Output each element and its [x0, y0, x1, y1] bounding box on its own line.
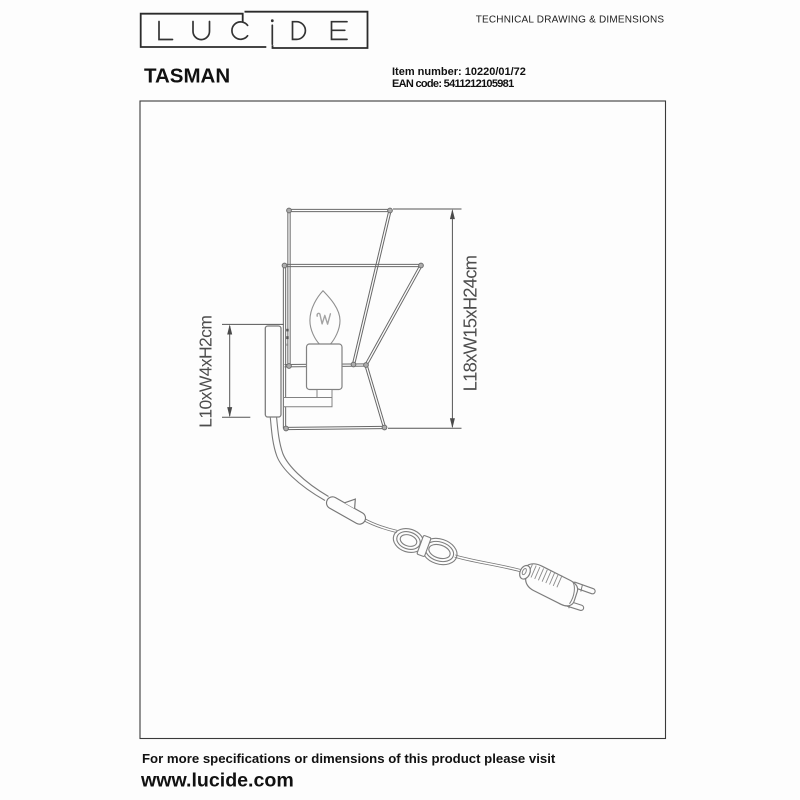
- svg-text:L18xW15xH24cm: L18xW15xH24cm: [460, 255, 481, 391]
- svg-text:Item number: 10220/01/72: Item number: 10220/01/72: [392, 66, 526, 78]
- svg-text:www.lucide.com: www.lucide.com: [140, 770, 294, 792]
- svg-text:TASMAN: TASMAN: [144, 65, 230, 88]
- svg-text:TECHNICAL DRAWING & DIMENSIONS: TECHNICAL DRAWING & DIMENSIONS: [476, 15, 665, 26]
- svg-text:For more specifications or dim: For more specifications or dimensions of…: [142, 751, 556, 766]
- svg-text:L10xW4xH2cm: L10xW4xH2cm: [196, 316, 216, 428]
- svg-text:EAN code: 5411212105981: EAN code: 5411212105981: [392, 78, 514, 90]
